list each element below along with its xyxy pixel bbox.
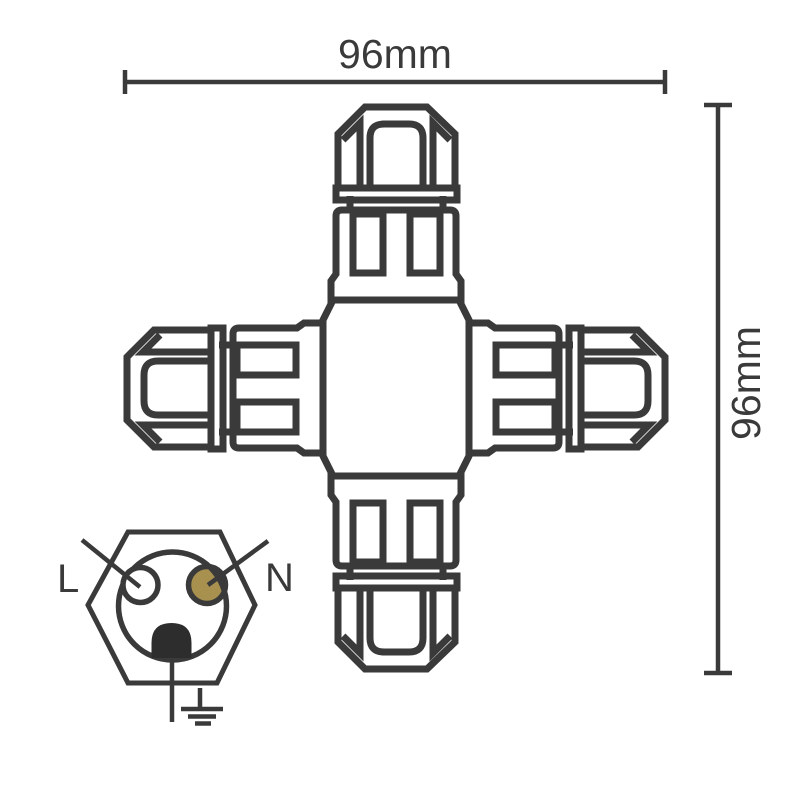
connector-dimension-diagram: 96mm 96mm L N — [0, 0, 800, 800]
live-pin-label: L — [57, 557, 79, 601]
right-arm — [469, 323, 665, 453]
height-dimension-label: 96mm — [723, 326, 769, 440]
pinout-detail — [82, 532, 268, 724]
width-dimension-label: 96mm — [338, 31, 452, 77]
neutral-pin-label: N — [265, 556, 294, 600]
earth-ground-symbol — [181, 688, 223, 724]
ground-pin — [152, 623, 192, 658]
bottom-arm — [331, 476, 461, 669]
left-arm — [127, 323, 323, 453]
top-arm — [331, 107, 461, 300]
technical-drawing-page: 96mm 96mm L N — [0, 0, 800, 800]
central-body — [323, 300, 469, 476]
